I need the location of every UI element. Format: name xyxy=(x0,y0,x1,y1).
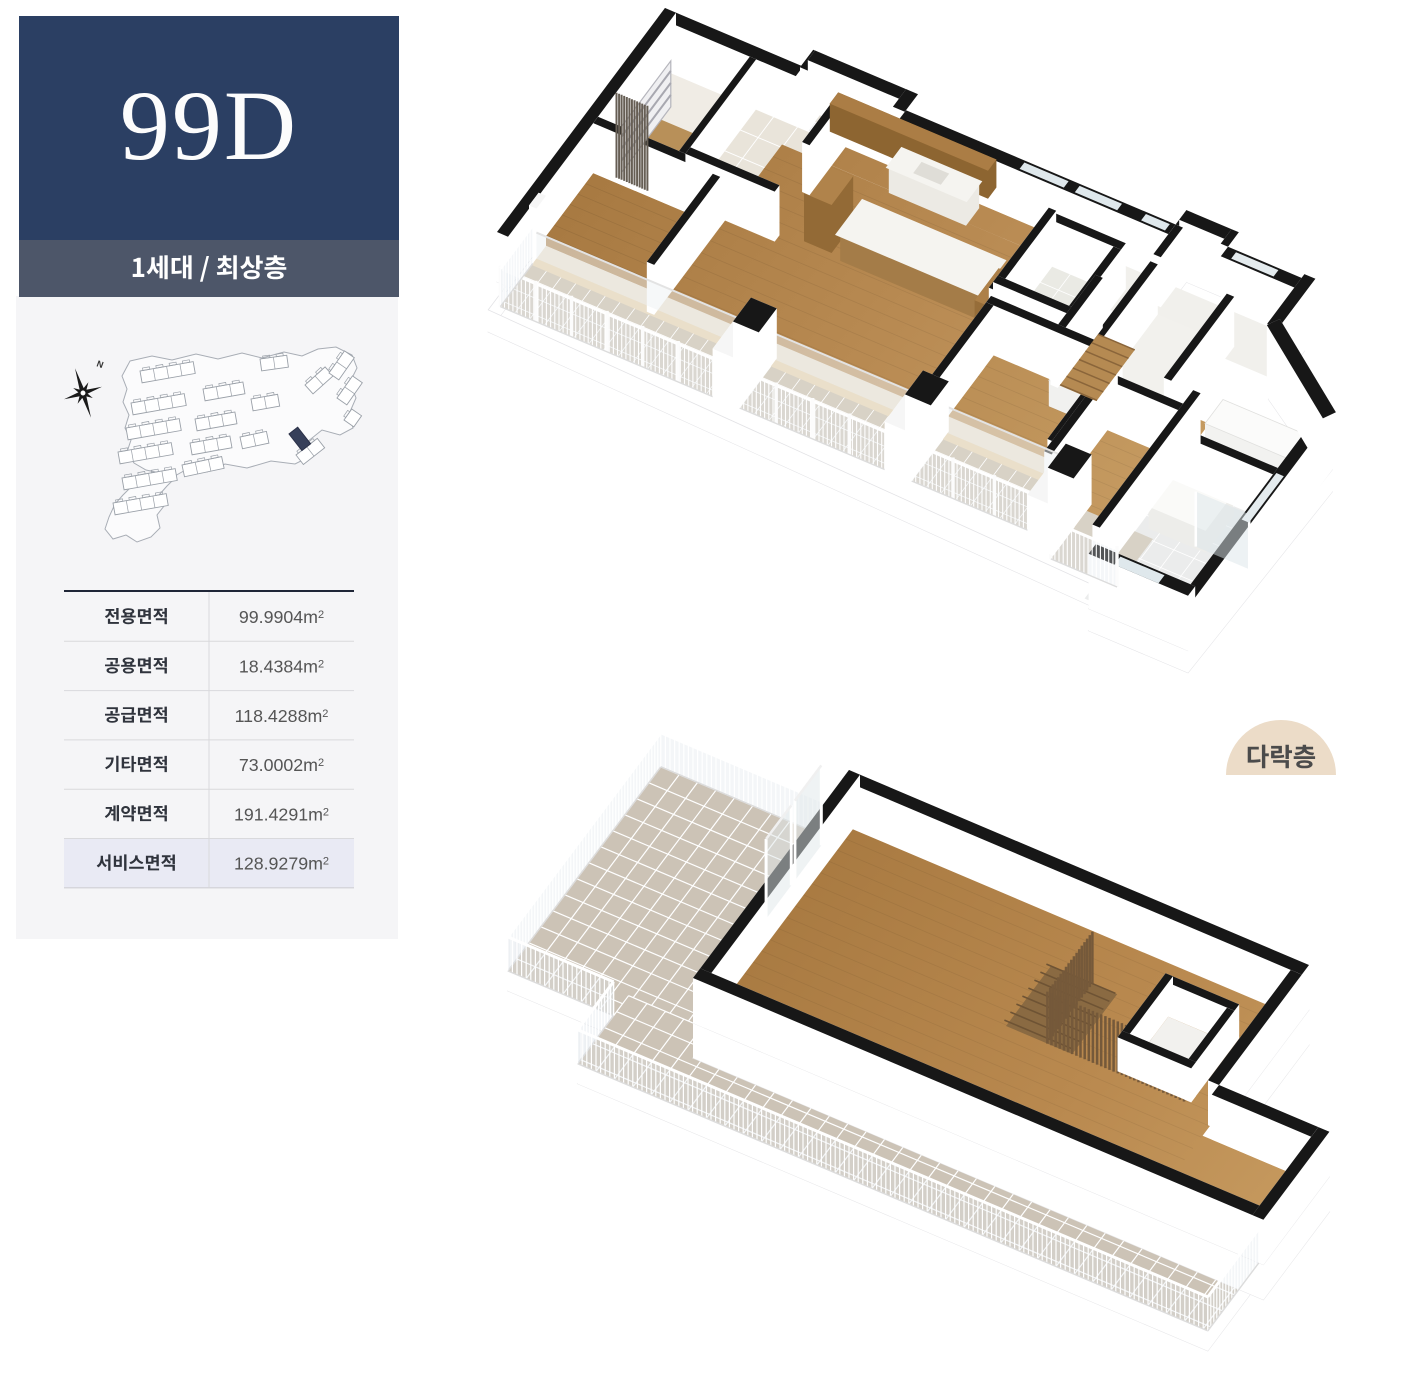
svg-text:191.4291m2: 191.4291m2 xyxy=(234,804,329,824)
svg-text:73.0002m2: 73.0002m2 xyxy=(239,755,324,775)
svg-text:N: N xyxy=(95,358,105,370)
svg-text:18.4384m2: 18.4384m2 xyxy=(239,656,324,676)
svg-text:118.4288m2: 118.4288m2 xyxy=(235,705,329,725)
svg-text:99.9904m2: 99.9904m2 xyxy=(239,607,324,627)
svg-text:128.9279m2: 128.9279m2 xyxy=(234,853,329,873)
